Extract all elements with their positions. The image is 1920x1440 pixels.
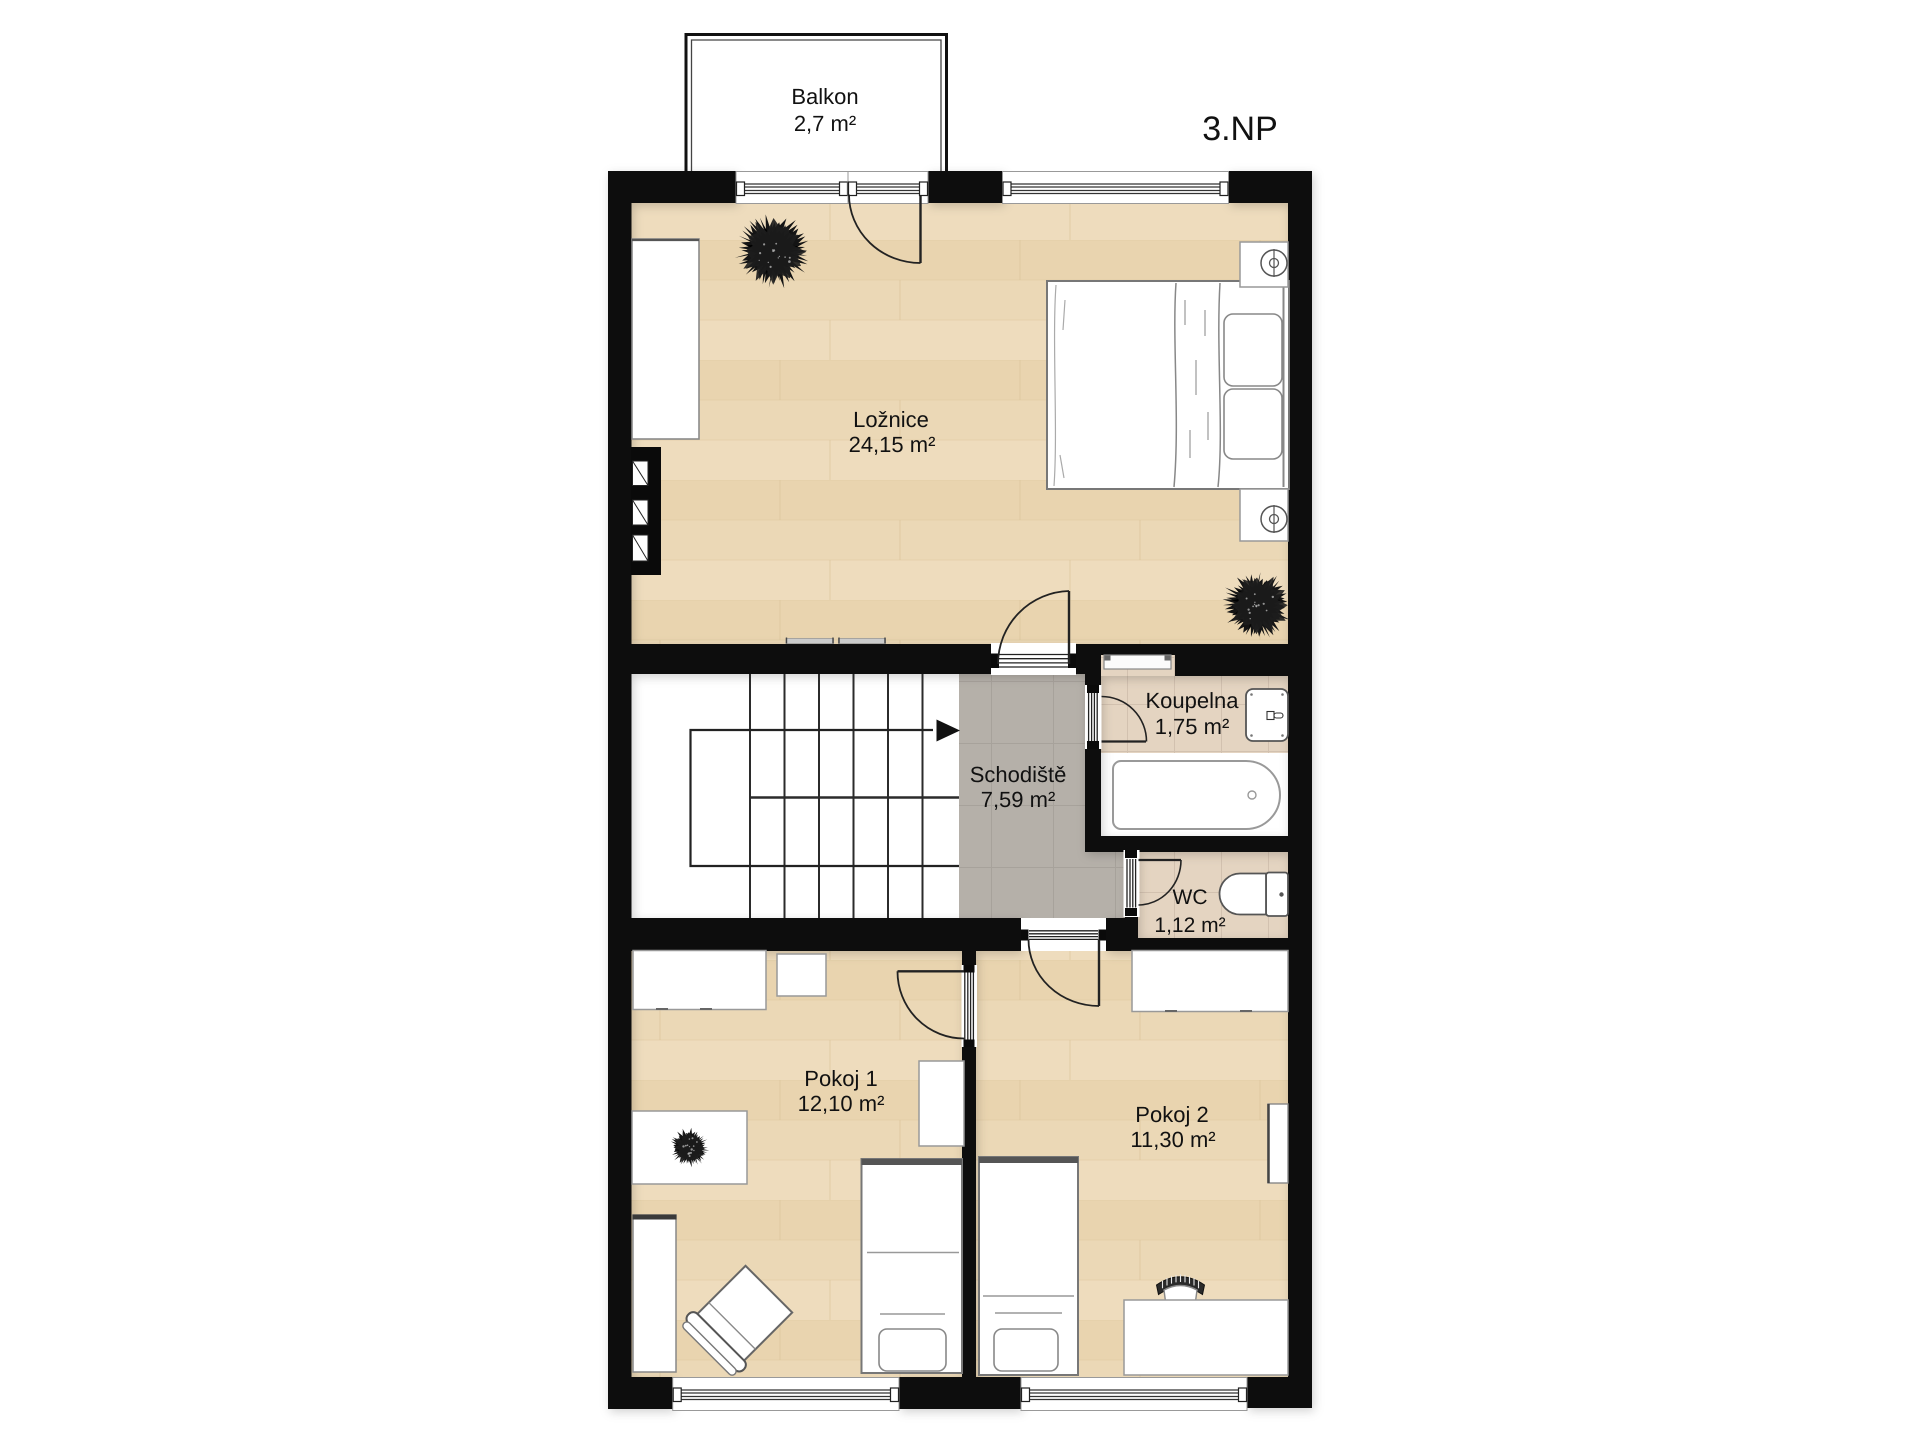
svg-text:WC: WC <box>1173 886 1208 909</box>
svg-text:Pokoj 1: Pokoj 1 <box>804 1066 877 1091</box>
svg-text:3.NP: 3.NP <box>1202 110 1278 148</box>
svg-text:Ložnice: Ložnice <box>853 407 929 432</box>
svg-text:7,59 m²: 7,59 m² <box>981 787 1056 812</box>
svg-text:2,7 m²: 2,7 m² <box>794 111 856 136</box>
svg-text:Schodiště: Schodiště <box>970 762 1067 787</box>
svg-text:1,12 m²: 1,12 m² <box>1154 914 1225 937</box>
svg-text:24,15 m²: 24,15 m² <box>849 432 936 457</box>
svg-text:Koupelna: Koupelna <box>1146 688 1240 713</box>
svg-text:Pokoj 2: Pokoj 2 <box>1135 1102 1208 1127</box>
svg-text:12,10 m²: 12,10 m² <box>798 1091 885 1116</box>
svg-text:1,75 m²: 1,75 m² <box>1155 714 1230 739</box>
svg-text:Balkon: Balkon <box>791 84 858 109</box>
svg-text:11,30 m²: 11,30 m² <box>1130 1127 1215 1152</box>
